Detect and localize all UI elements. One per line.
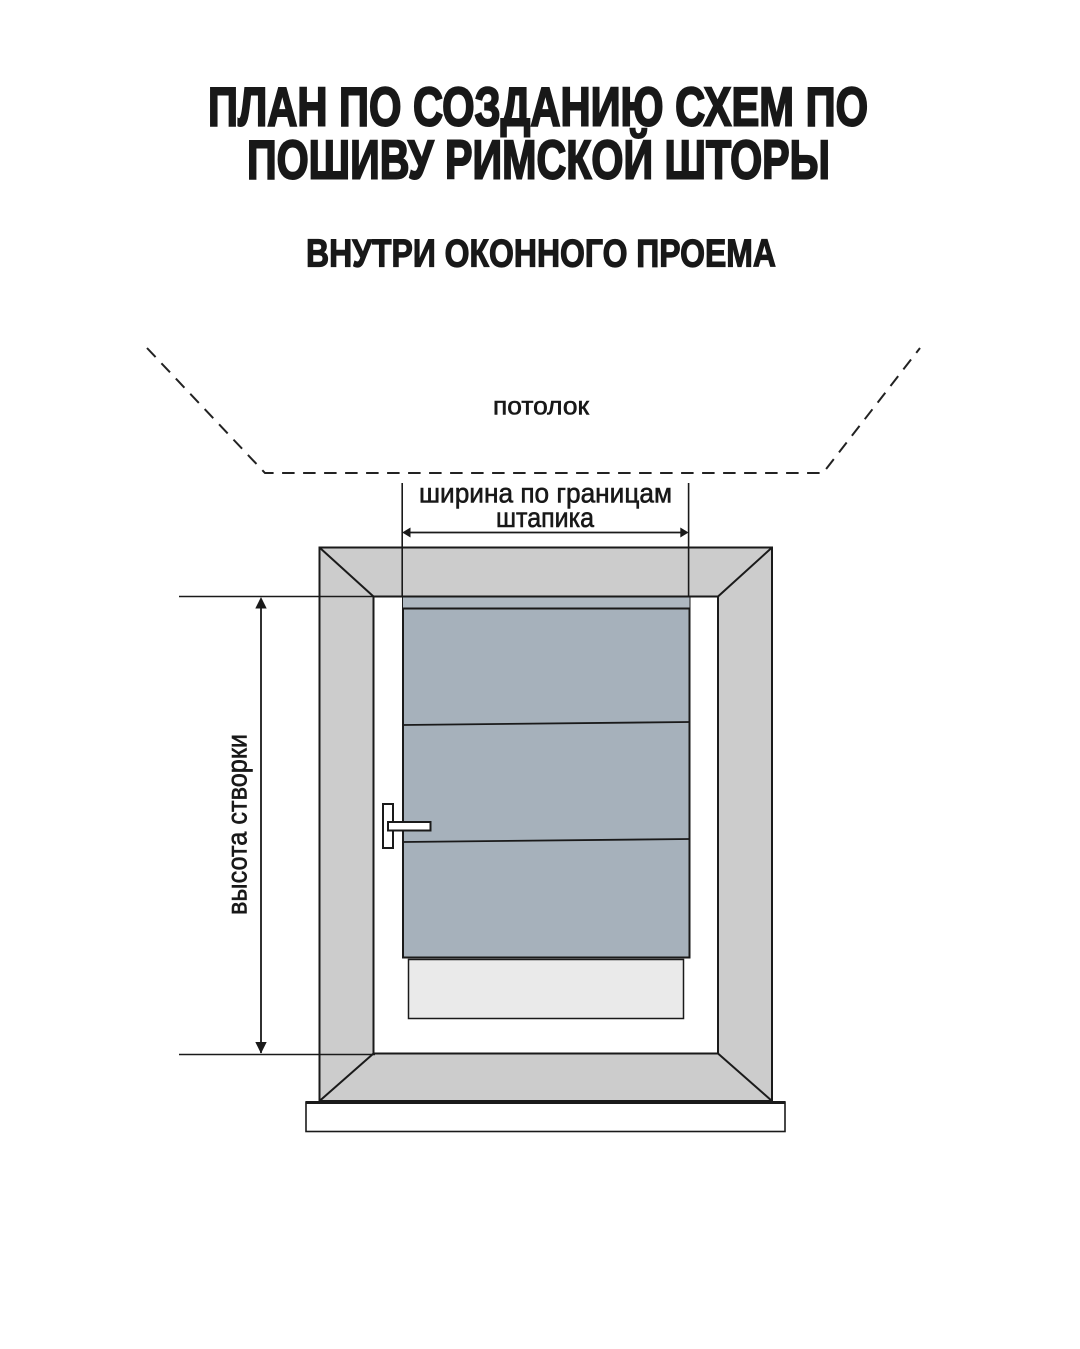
svg-text:ВНУТРИ ОКОННОГО ПРОЕМА: ВНУТРИ ОКОННОГО ПРОЕМА [306,233,776,276]
svg-text:штапика: штапика [496,502,594,533]
svg-text:ПОШИВУ РИМСКОЙ ШТОРЫ: ПОШИВУ РИМСКОЙ ШТОРЫ [247,128,830,191]
svg-text:потолок: потолок [493,393,590,421]
svg-text:высота створки: высота створки [222,734,253,915]
